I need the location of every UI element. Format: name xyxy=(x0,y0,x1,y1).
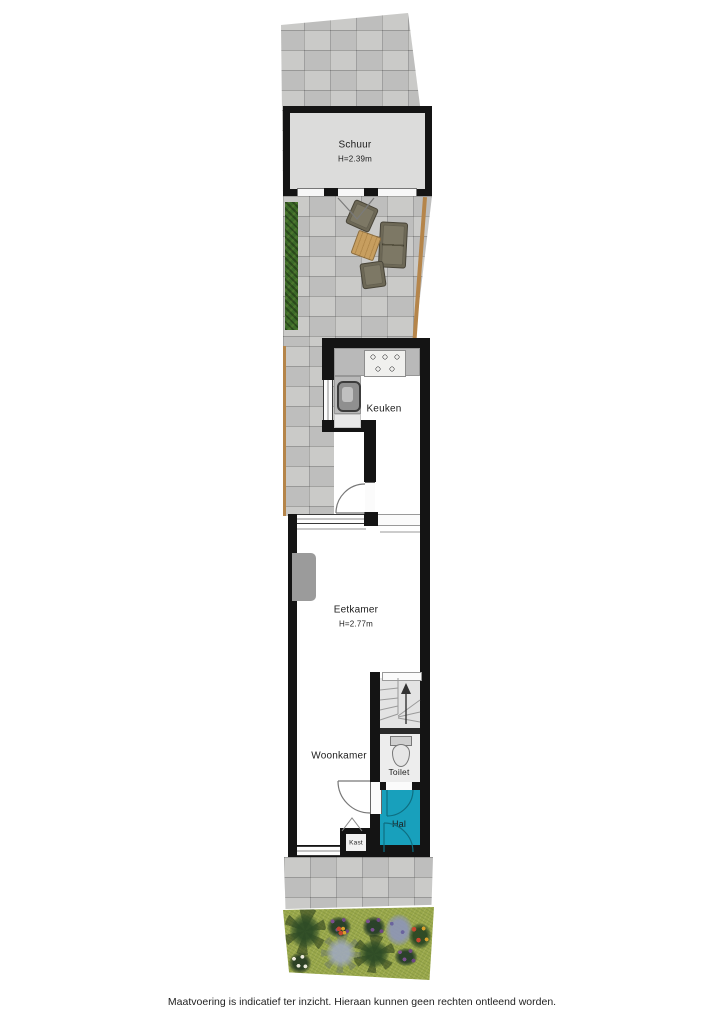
shed-floor xyxy=(290,113,425,189)
kitchen-dining-passage xyxy=(378,514,420,526)
wall-under-stairs xyxy=(380,728,420,734)
sink-basin xyxy=(342,387,353,402)
plant-fern xyxy=(353,935,395,973)
toilet-doorway xyxy=(386,782,412,790)
room-label-kast: Kast xyxy=(349,840,363,847)
room-label-schuur: Schuur xyxy=(339,140,372,151)
fence-left xyxy=(283,346,286,516)
kitchen-appliance xyxy=(334,414,361,428)
room-label-hal: Hal xyxy=(392,819,406,829)
plant-purple-bush xyxy=(391,945,421,969)
plant-fern xyxy=(284,907,326,955)
armchair-cushion xyxy=(349,203,375,229)
sofa-cushion xyxy=(381,224,405,265)
room-height-schuur: H=2.39m xyxy=(338,155,372,164)
stove-icon xyxy=(364,350,406,377)
wall-kitchen-left-lower xyxy=(364,432,376,482)
stairs-floor xyxy=(380,678,420,728)
shed-building xyxy=(283,106,432,196)
diningroom-cupboard xyxy=(292,553,316,601)
backdoor-opening xyxy=(365,482,375,515)
room-label-woonkamer: Woonkamer xyxy=(311,751,367,762)
diningroom-window xyxy=(297,514,364,524)
front-garden xyxy=(283,907,434,983)
patio-armchair xyxy=(359,260,386,289)
room-height-eetkamer: H=2.77m xyxy=(339,620,373,629)
room-label-eetkamer: Eetkamer xyxy=(334,605,378,616)
wall-partition-upper xyxy=(370,672,380,782)
floorplan-canvas: Schuur H=2.39m Keuken xyxy=(0,0,724,1024)
kitchen-window xyxy=(323,380,333,420)
plant-red-flowers xyxy=(335,925,348,938)
sink-icon xyxy=(337,381,361,412)
wall-right xyxy=(420,346,430,857)
garden-hedge xyxy=(285,202,298,330)
livingroom-window xyxy=(297,846,340,856)
stairs-top-strip xyxy=(382,672,422,681)
disclaimer-text: Maatvoering is indicatief ter inzicht. H… xyxy=(0,996,724,1008)
room-label-toilet: Toilet xyxy=(388,767,409,777)
wall-kitchen-top xyxy=(322,338,430,348)
room-label-keuken: Keuken xyxy=(366,404,401,415)
armchair-cushion xyxy=(363,264,384,286)
window-sill-line xyxy=(297,528,366,530)
plant-white-flowers xyxy=(285,949,315,977)
wall-pier xyxy=(364,512,378,526)
pavement-bottom xyxy=(284,857,433,909)
wall-kitchen-left-upper xyxy=(322,348,334,380)
